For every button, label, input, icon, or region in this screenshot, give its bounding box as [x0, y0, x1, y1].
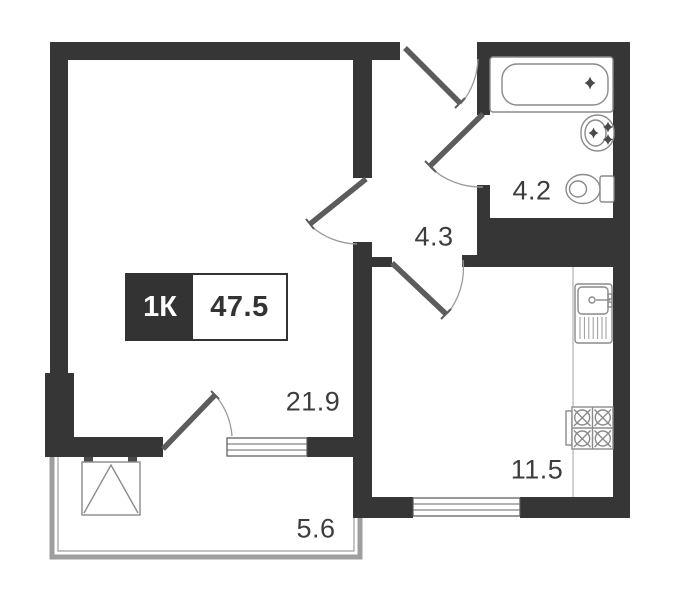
apartment-type-box: 1К 47.5	[125, 273, 288, 341]
floor-plan: 1К 47.5 21.9 4.3 4.2 11.5 5.6	[0, 0, 677, 597]
washbasin-icon	[581, 115, 614, 151]
kitchen-window	[413, 498, 520, 516]
entrance-door	[405, 48, 478, 108]
toilet-icon	[566, 175, 614, 204]
bathtub-icon	[490, 57, 613, 112]
bathroom-area-label: 4.2	[512, 176, 551, 207]
sink-drainboard	[580, 317, 606, 339]
living-room-area-label: 21.9	[286, 387, 341, 418]
living-room-door	[306, 179, 366, 244]
hallway-area-label: 4.3	[414, 222, 453, 253]
stove-icon	[566, 407, 613, 449]
kitchen-sink-icon	[575, 284, 612, 343]
bathroom-door	[425, 114, 483, 187]
wardrobe-icon	[82, 457, 140, 515]
apartment-total-area: 47.5	[193, 275, 286, 339]
balcony-area-label: 5.6	[296, 514, 335, 545]
kitchen-door	[392, 260, 463, 319]
apartment-type-label: 1К	[127, 275, 193, 339]
floor-plan-drawing	[0, 0, 677, 597]
balcony-door	[163, 391, 232, 449]
kitchen-area-label: 11.5	[511, 455, 564, 486]
balcony-window	[227, 438, 307, 456]
